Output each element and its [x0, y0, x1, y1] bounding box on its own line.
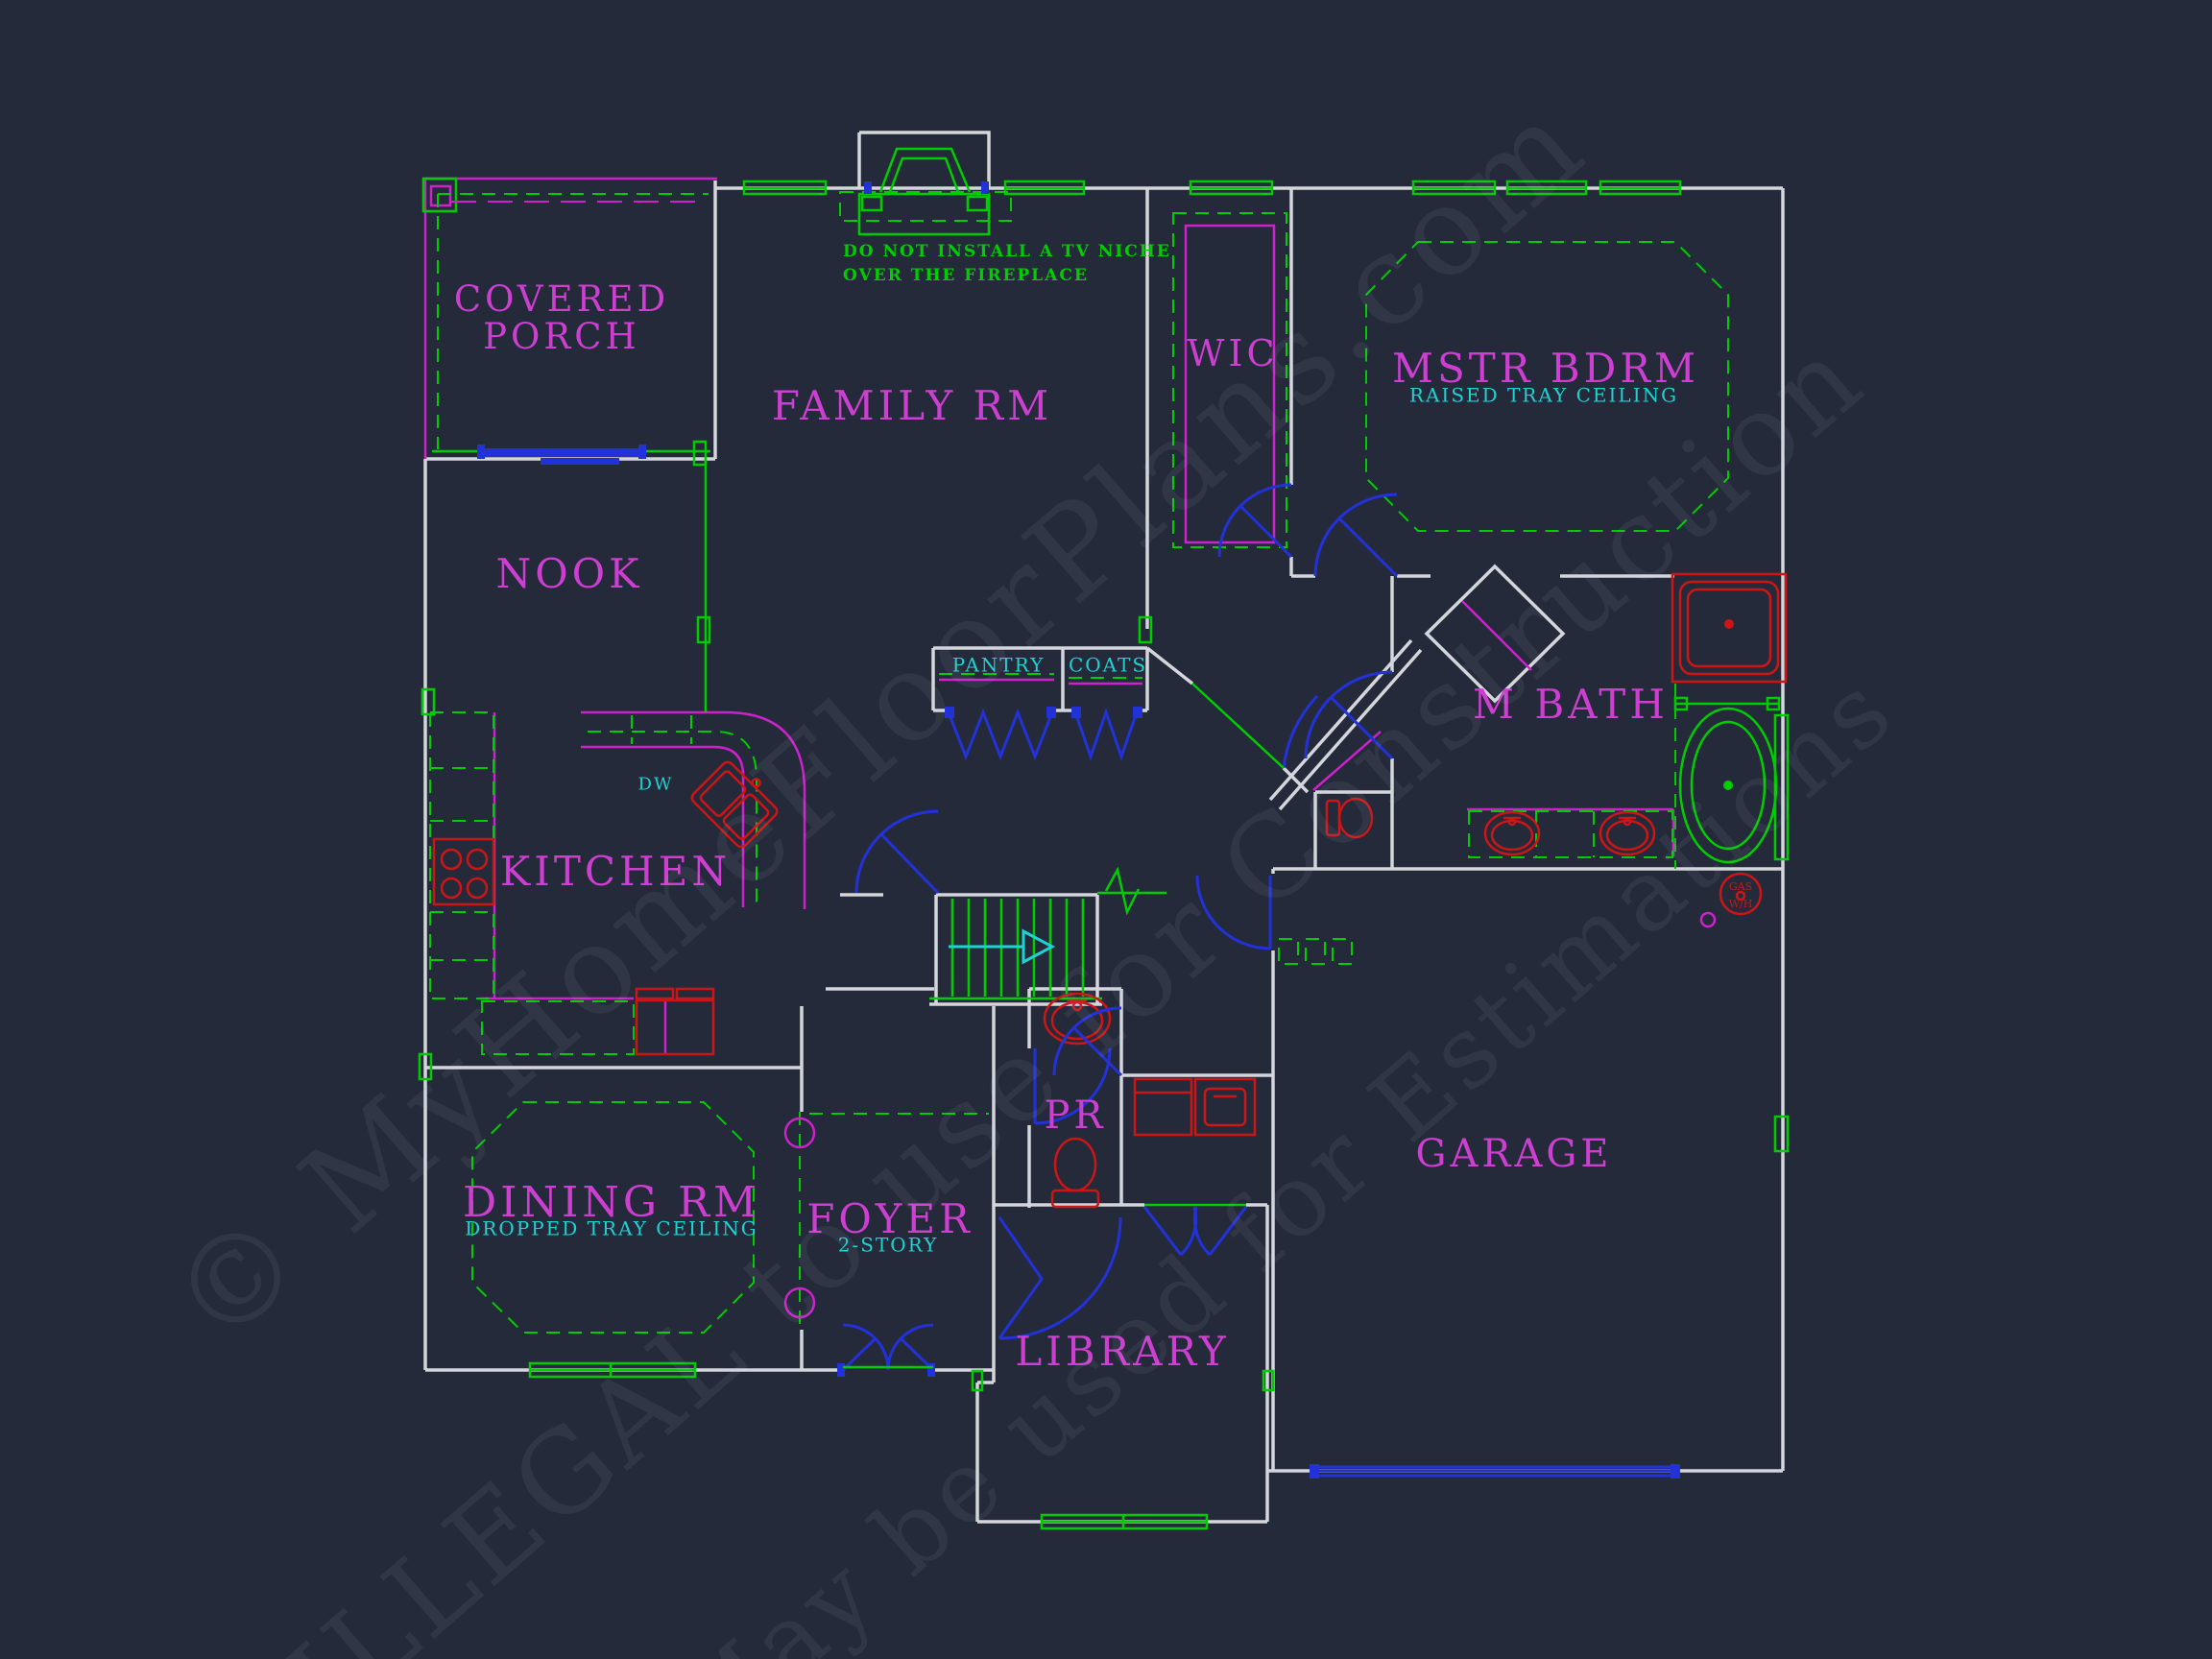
coats-bifold-doors — [1075, 712, 1137, 757]
wc-toilet-icon — [1327, 799, 1372, 837]
garage-entry-door-arc — [1197, 876, 1270, 949]
doors-layer — [477, 445, 1680, 1479]
room-label-covered-porch: COVERED PORCH — [432, 281, 691, 356]
room-label-coats: COATS — [1069, 656, 1147, 676]
room-label-nook: NOOK — [496, 553, 643, 595]
kitchen-sink-icon — [689, 755, 784, 850]
room-label-garage: GARAGE — [1416, 1134, 1613, 1174]
room-sublabel-dining-rm: DROPPED TRAY CEILING — [465, 1219, 757, 1239]
room-label-library: LIBRARY — [1015, 1331, 1229, 1373]
pantry-bifold-doors — [949, 712, 1052, 757]
front-entry-doors — [843, 1325, 933, 1370]
fireplace-warning-line2: OVER THE FIREPLACE — [843, 264, 1171, 288]
dryer-icon — [1195, 1079, 1255, 1135]
nook-slider-door — [477, 445, 646, 465]
room-label-pr: PR — [1044, 1095, 1106, 1136]
garage-door — [1310, 1464, 1680, 1479]
dishwasher-label: DW — [638, 777, 674, 795]
library-french-doors — [1144, 1207, 1246, 1255]
washer-icon — [1135, 1079, 1191, 1135]
powder-sink-icon — [1045, 994, 1110, 1044]
water-heater-label-bottom: W/H — [1729, 899, 1753, 910]
vanity — [1467, 809, 1673, 857]
fireplace-warning-line1: DO NOT INSTALL A TV NICHE — [843, 240, 1171, 264]
refrigerator-icon — [637, 989, 713, 1054]
fireplace-icon — [840, 132, 1011, 234]
vanity-sink-left-icon — [1485, 812, 1539, 854]
hall-door-arc — [856, 811, 938, 893]
stairs — [929, 870, 1166, 998]
room-label-pantry: PANTRY — [952, 656, 1046, 676]
water-heater-label-top: GAS — [1729, 881, 1752, 893]
closet-rods — [939, 680, 1142, 684]
fireplace-warning-note: DO NOT INSTALL A TV NICHE OVER THE FIREP… — [843, 240, 1171, 287]
master-bedroom-door-arc — [1315, 494, 1397, 576]
wic-shelf-dashed — [1173, 213, 1286, 547]
foyer-library-door-arc — [999, 1217, 1120, 1338]
vanity-sink-right-icon — [1600, 812, 1654, 854]
floorplan-canvas: COVERED PORCH FAMILY RM NOOK WIC MSTR BD… — [0, 0, 2212, 1659]
closet-rod-diagonal — [1462, 601, 1531, 670]
room-sublabel-mstr-bdrm: RAISED TRAY CEILING — [1409, 386, 1678, 406]
shower-icon — [1672, 574, 1786, 682]
room-label-kitchen: KITCHEN — [500, 851, 731, 893]
stove-icon — [434, 839, 493, 904]
kitchen-cabinets — [430, 459, 805, 1054]
room-label-m-bath: M BATH — [1473, 684, 1669, 726]
door-leaf-green — [843, 684, 1284, 1367]
room-sublabel-foyer: 2-STORY — [838, 1236, 939, 1256]
room-label-family-rm: FAMILY RM — [772, 385, 1052, 427]
hall-diagonal-door-arc — [1284, 696, 1317, 768]
wic-door-arc — [1219, 485, 1291, 557]
laundry-door-arc — [1054, 1008, 1121, 1075]
powder-toilet-icon — [1052, 1139, 1098, 1207]
wic-shelving — [1186, 226, 1274, 542]
room-label-wic: WIC — [1187, 335, 1278, 373]
tub-icon — [1675, 698, 1779, 862]
